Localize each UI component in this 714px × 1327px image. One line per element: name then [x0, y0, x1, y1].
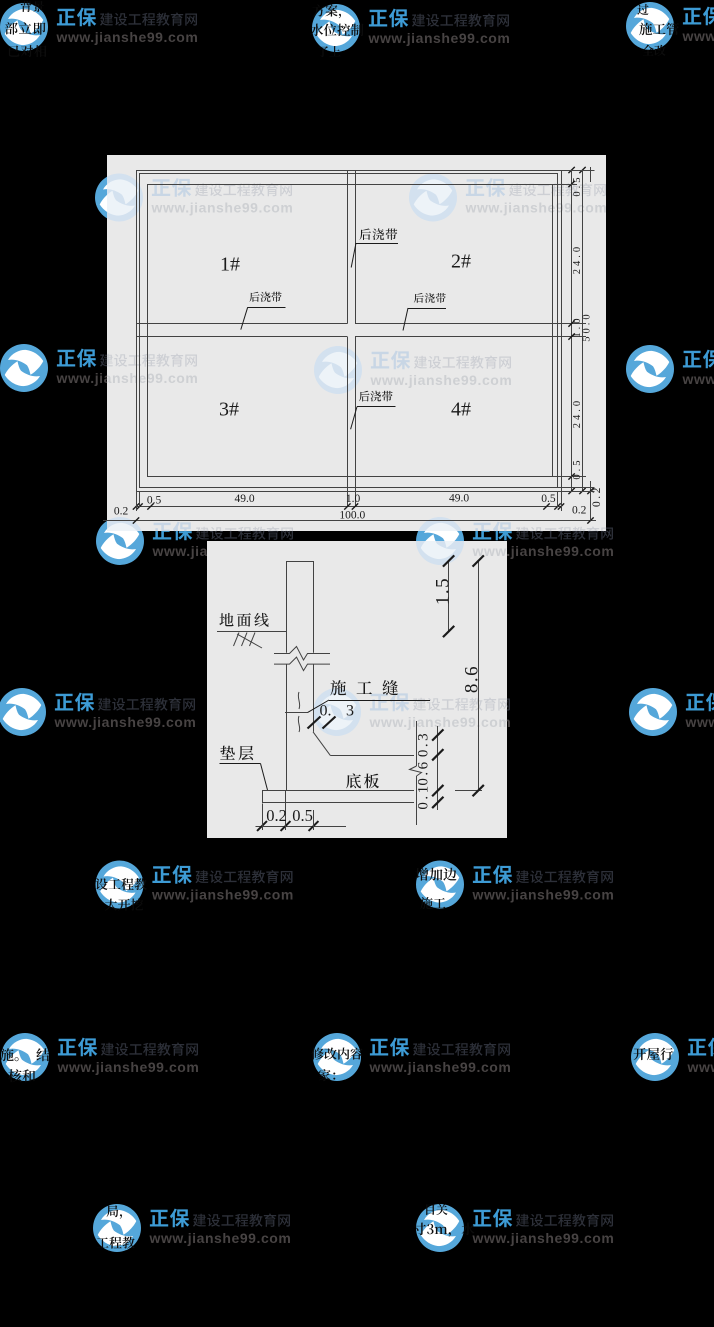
- svg-text:0.2: 0.2: [572, 505, 587, 517]
- svg-text:3: 3: [346, 703, 354, 720]
- svg-text:0.5: 0.5: [572, 457, 583, 479]
- svg-text:24.0: 24.0: [572, 244, 583, 274]
- svg-text:100.0: 100.0: [339, 510, 365, 522]
- svg-text:1.5: 1.5: [433, 577, 454, 605]
- svg-text:8.6: 8.6: [462, 665, 483, 693]
- svg-text:2#: 2#: [451, 251, 471, 273]
- svg-text:0.5: 0.5: [541, 493, 556, 505]
- svg-text:0.5: 0.5: [572, 174, 583, 196]
- svg-text:0.2: 0.2: [591, 485, 603, 507]
- svg-text:24.0: 24.0: [572, 398, 583, 428]
- svg-text:4#: 4#: [451, 399, 471, 421]
- svg-text:49.0: 49.0: [234, 493, 254, 505]
- svg-text:50.0: 50.0: [582, 311, 593, 341]
- svg-text:3#: 3#: [219, 399, 239, 421]
- svg-text:1#: 1#: [220, 254, 240, 276]
- svg-text:49.0: 49.0: [449, 493, 469, 505]
- svg-text:0.5: 0.5: [292, 806, 313, 825]
- svg-text:1.0: 1.0: [346, 493, 361, 505]
- svg-text:0.3: 0.3: [416, 731, 432, 757]
- svg-text:0.2: 0.2: [114, 506, 129, 518]
- svg-text:0.1: 0.1: [416, 783, 432, 809]
- svg-text:0.6: 0.6: [416, 759, 432, 785]
- svg-text:0.2: 0.2: [266, 806, 287, 825]
- svg-text:0.5: 0.5: [147, 495, 162, 507]
- svg-text:0.: 0.: [320, 703, 332, 720]
